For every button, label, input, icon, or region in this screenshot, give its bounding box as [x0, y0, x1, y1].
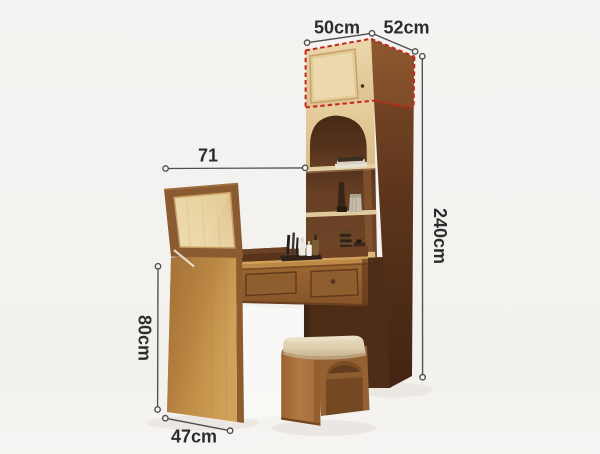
- svg-text:50cm: 50cm: [314, 18, 360, 38]
- svg-text:47cm: 47cm: [171, 427, 217, 447]
- svg-text:52cm: 52cm: [383, 18, 429, 38]
- svg-text:240cm: 240cm: [430, 208, 450, 264]
- svg-text:71: 71: [198, 146, 218, 166]
- svg-text:80cm: 80cm: [135, 315, 155, 361]
